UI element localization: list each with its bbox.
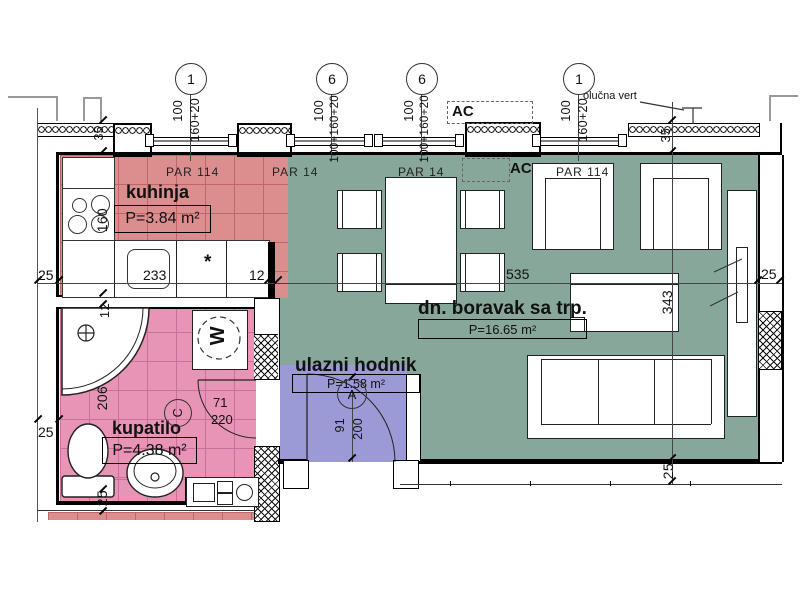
- window-dim-sill: 100: [312, 100, 326, 122]
- wall-left: [56, 155, 59, 505]
- dim-line-horizontal: [37, 283, 782, 284]
- wall-stub: [268, 242, 275, 298]
- window-jamb: [286, 134, 295, 147]
- grid-marker-2: 6: [316, 63, 348, 95]
- dim-kitchen-stub: 12: [249, 267, 265, 283]
- window-dim-win: 160+20: [188, 98, 202, 142]
- gutter-note: olučna vert: [583, 90, 637, 102]
- window-jamb: [374, 134, 383, 147]
- window-dim-win: 160+20: [576, 98, 590, 142]
- wall-bath-bottom: [56, 501, 188, 505]
- wall-insulation-strip: [628, 123, 760, 137]
- ac-indoor-box: [462, 158, 510, 182]
- chair: [460, 253, 505, 292]
- room-area-bathroom: P=4.38 m²: [102, 437, 197, 464]
- dim-bath-depth: 206: [94, 386, 110, 410]
- armchair: [640, 163, 722, 250]
- dim-kitchen-depth: 160: [94, 208, 110, 232]
- wall-bath-right-upper: [254, 298, 280, 380]
- grid-marker-3: 6: [406, 63, 438, 95]
- fixture-mark-label: C: [171, 408, 185, 417]
- dim-25-left-mid: 25: [38, 424, 54, 440]
- dim-door-width: 91: [333, 418, 347, 433]
- wall-living-bottom: [418, 459, 782, 464]
- wall-right-top-line: [780, 123, 782, 155]
- window-dim-sill: 100: [402, 100, 416, 122]
- wall-hatch: [254, 334, 278, 379]
- dim-bath-door-height: 220: [211, 412, 233, 427]
- dim-25-left-top: 25: [38, 267, 54, 283]
- dim-25-living-bottom: 25: [660, 463, 676, 479]
- grid-marker-label: 6: [328, 71, 336, 87]
- burner: [68, 215, 87, 234]
- dim-bath-door-width: 71: [213, 395, 227, 410]
- dim-hall-width: 200: [351, 418, 365, 440]
- dim-25-bath-bottom: 25: [94, 490, 110, 506]
- window-dim-sill: 100: [171, 100, 185, 122]
- neighbor-sink-unit: [186, 477, 259, 507]
- washer-letter: W: [207, 326, 230, 345]
- dining-table: [385, 177, 457, 304]
- window-dim-win: 100+160+20: [419, 95, 431, 163]
- fixture-mark-circle: C: [164, 399, 192, 427]
- wall-right-hatch: [758, 311, 782, 370]
- room-area-kitchen: P=3.84 m²: [114, 205, 211, 233]
- neighbor-outline-left: [8, 97, 101, 121]
- room-name-kitchen: kuhinja: [126, 182, 189, 203]
- shelf-inner: [736, 247, 748, 323]
- dim-living-width: 535: [506, 266, 529, 282]
- sofa: [527, 355, 725, 439]
- room-name-living: dn. boravak sa trp.: [418, 298, 587, 320]
- floor-label: PAR 14: [272, 165, 318, 179]
- dim-bath-wall-top: 12: [97, 303, 112, 318]
- grid-marker-label: 6: [418, 71, 426, 87]
- boundary-line-bottom: [400, 484, 782, 485]
- door-mark-circle: A: [337, 379, 367, 409]
- neighbor-outline-right: [770, 96, 798, 121]
- entry-door-jamb: [283, 460, 309, 489]
- floor-label: PAR 114: [166, 165, 219, 179]
- floor-label: PAR 114: [556, 165, 609, 179]
- wall-right: [758, 155, 784, 462]
- star-symbol: *: [204, 252, 211, 274]
- boundary-line-left: [37, 108, 38, 522]
- window-jamb: [455, 134, 464, 147]
- room-area-living: P=16.65 m²: [418, 319, 587, 339]
- window-jamb: [618, 134, 627, 147]
- kitchen-counter-top-cell: [62, 157, 115, 190]
- window-jamb: [532, 134, 541, 147]
- dim-35-left: 35: [92, 126, 106, 141]
- door-mark-label: A: [348, 387, 357, 402]
- burner: [72, 198, 87, 213]
- dim-living-depth: 343: [659, 290, 675, 314]
- boundary-line-bottom-left: [37, 510, 257, 511]
- dim-35-right: 35: [659, 128, 673, 143]
- chair: [337, 253, 382, 292]
- chair: [337, 190, 382, 229]
- shelf: [727, 190, 757, 417]
- grid-marker-label: 1: [187, 71, 195, 87]
- window-dim-sill: 100: [559, 100, 573, 122]
- dim-25-right: 25: [761, 266, 777, 282]
- ac-outdoor-label: AC: [452, 103, 474, 120]
- grid-marker-label: 1: [575, 71, 583, 87]
- dim-kitchen-width: 233: [143, 267, 166, 283]
- neighbor-floor-strip: [48, 512, 256, 520]
- floor-plan: W: [0, 0, 800, 600]
- grid-marker-1: 1: [175, 63, 207, 95]
- floor-label: PAR 14: [398, 165, 444, 179]
- window-jamb: [145, 134, 154, 147]
- window: [380, 137, 456, 146]
- window-dim-win: 100+160+20: [329, 95, 341, 163]
- window-jamb: [228, 134, 237, 147]
- window-jamb: [364, 134, 373, 147]
- chair: [460, 190, 505, 229]
- bathroom-floor-tab: [60, 479, 186, 503]
- ac-indoor-label: AC: [510, 160, 532, 177]
